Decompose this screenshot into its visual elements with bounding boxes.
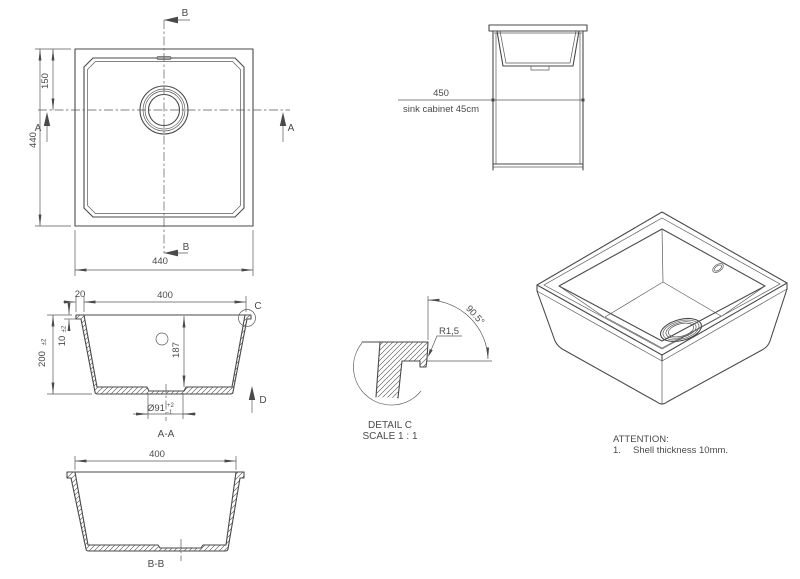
dim-aa-opening-label: 400 <box>157 290 173 301</box>
section-aa-title: A-A <box>158 429 175 440</box>
section-b-marker-bottom: B <box>164 242 190 256</box>
section-bb-view: 400 B-B <box>67 449 244 570</box>
detail-c-title: DETAIL C <box>368 420 412 431</box>
detail-c-marker: C <box>239 301 262 327</box>
dim-top-height-label: 440 <box>28 132 39 148</box>
dim-detail-radius: R1,5 <box>428 326 462 357</box>
dim-drain-dia-label: Ø91 <box>147 403 165 414</box>
countertop <box>489 25 587 31</box>
direction-d-marker: D <box>249 386 267 413</box>
dim-aa-shell-tol: ±2 <box>62 325 68 332</box>
dim-drain-offset-label: 150 <box>40 73 51 89</box>
section-b-label-bottom: B <box>183 242 190 253</box>
detail-c-letter: C <box>254 301 261 312</box>
dim-top-width-label: 440 <box>152 256 168 267</box>
section-b-marker-top: B <box>164 8 190 23</box>
dim-aa-height-tol: ±2 <box>42 338 48 345</box>
dim-aa-shell: 10 ±2 <box>57 303 80 346</box>
direction-d-letter: D <box>259 395 266 406</box>
dim-bb-opening: 400 <box>75 449 236 470</box>
dim-detail-angle: 90.5° <box>427 296 492 361</box>
dim-aa-drain: Ø91 +2 -1 <box>133 393 196 419</box>
section-aa-view: 20 400 200 ±2 10 ±2 187 Ø91 <box>37 289 267 440</box>
dim-aa-depth: 187 <box>171 316 184 387</box>
detail-c-view: 90.5° R1,5 DETAIL C SCALE 1 : 1 <box>353 296 492 442</box>
dim-drain-tol-minus: -1 <box>167 410 173 416</box>
attention-item-text: Shell thickness 10mm. <box>633 445 728 456</box>
dim-aa-height-label: 200 <box>37 351 48 367</box>
sink-in-cabinet <box>494 31 582 70</box>
dim-drain-offset: 150 <box>40 49 53 110</box>
attention-heading: ATTENTION: <box>613 434 669 445</box>
cabinet-view: 450 sink cabinet 45cm <box>398 25 587 170</box>
attention-item-number: 1. <box>613 445 621 456</box>
dim-aa-shell-label: 10 <box>57 336 68 347</box>
overflow-isometric <box>711 262 725 275</box>
dim-cabinet-width-label: 450 <box>433 88 449 99</box>
overflow-hole-section <box>156 333 168 345</box>
section-a-marker-right: A <box>280 112 295 142</box>
sink-drawing-svg: B B A A 440 440 <box>0 0 800 579</box>
section-b-label-top: B <box>182 8 189 19</box>
section-a-label-right: A <box>288 123 295 134</box>
attention-notes: ATTENTION: 1. Shell thickness 10mm. <box>613 434 728 456</box>
detail-c-scale: SCALE 1 : 1 <box>362 431 417 442</box>
dim-rim-offset-label: 20 <box>75 289 86 300</box>
dim-bb-opening-label: 400 <box>149 449 165 460</box>
dim-aa-top: 20 400 <box>63 289 246 312</box>
technical-drawing-sheet: B B A A 440 440 <box>0 0 800 579</box>
dim-detail-radius-label: R1,5 <box>439 326 459 337</box>
isometric-view <box>537 212 787 404</box>
dim-aa-depth-label: 187 <box>171 342 182 358</box>
top-view: B B A A 440 440 <box>28 8 295 276</box>
section-bb-title: B-B <box>148 559 165 570</box>
dim-cabinet-width: 450 sink cabinet 45cm <box>398 88 585 115</box>
dim-drain-tol-plus: +2 <box>167 403 175 409</box>
dim-detail-angle-label: 90.5° <box>463 303 486 327</box>
cabinet-caption: sink cabinet 45cm <box>403 104 479 115</box>
